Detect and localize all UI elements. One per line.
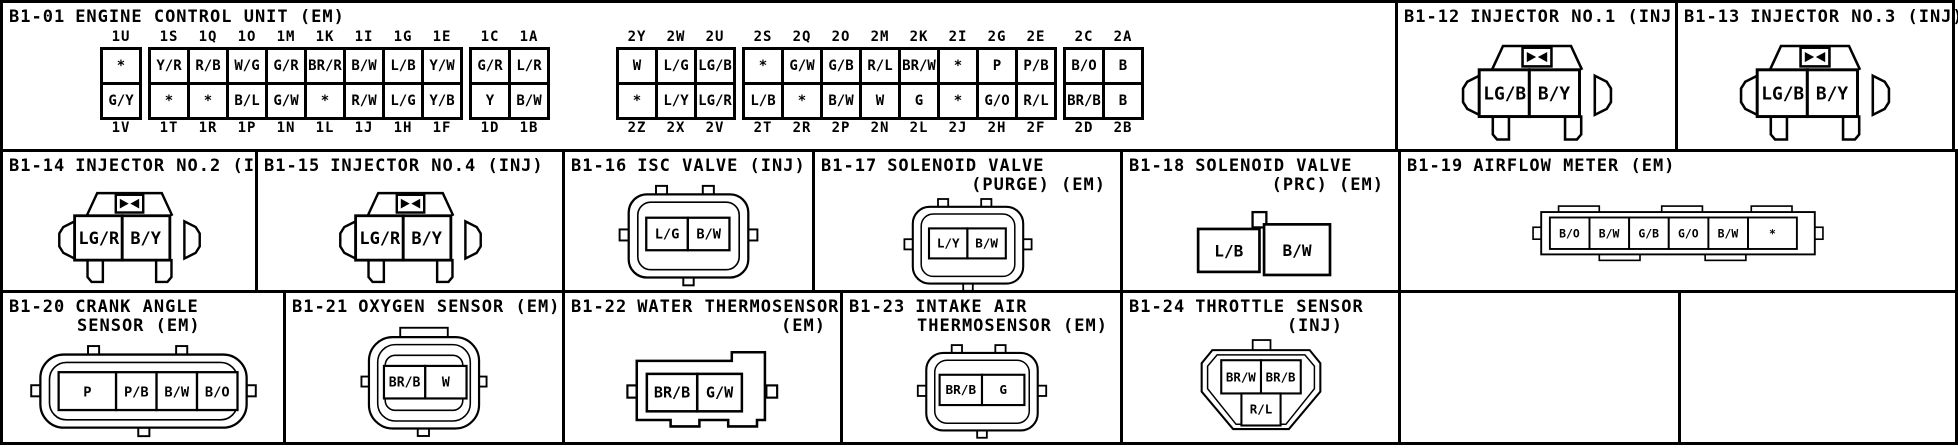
pin-number-bottom: 2J [937, 120, 979, 138]
wire-color-cell: L/B [742, 82, 784, 120]
connector-subtitle: THERMOSENSOR (EM) [843, 317, 1120, 335]
panel-title: B1-24THROTTLE SENSOR [1123, 293, 1398, 317]
block-connector-icon: L/B B/W [1146, 194, 1376, 290]
pin-wire-color: L/B [1214, 242, 1243, 261]
pin-wire-color: G/W [705, 383, 733, 401]
round-valve-connector-icon: L/Y B/W [878, 194, 1058, 290]
pin-column: 2U LG/B LG/R 2V [694, 29, 736, 138]
injector-connector-icon: LG/R B/Y [8, 177, 251, 290]
panel-b1-18-solenoid-valve-prc: B1-18SOLENOID VALVE (PRC) (EM) L/B B/W [1120, 149, 1401, 293]
connector-drawing: B/O B/W G/B G/O B/W * [1401, 176, 1955, 290]
pin-column: 2W L/G L/Y 2X [655, 29, 697, 138]
wire-color-cell: P/B [1015, 47, 1057, 85]
connector-name: INJECTOR NO.3 (INJ) [1750, 7, 1958, 27]
wire-color-cell: G/W [265, 82, 307, 120]
pin-number-bottom: 1L [304, 120, 346, 138]
pin-wire-color: B/Y [1816, 83, 1848, 104]
wire-color-cell: R/L [859, 47, 901, 85]
wire-color-cell: * [187, 82, 229, 120]
panel-b1-13-injector-3: B1-13INJECTOR NO.3 (INJ) LG/B B/Y [1675, 0, 1955, 152]
connector-name: WATER THERMOSENSOR [637, 297, 839, 317]
pin-wire-color: G/O [1678, 226, 1699, 240]
connector-id: B1-22 [571, 297, 627, 317]
panel-title: B1-12INJECTOR NO.1 (INJ) [1398, 3, 1675, 27]
pin-column: 2K BR/W G 2L [898, 29, 940, 138]
right-leg [1565, 116, 1581, 139]
connector-drawing: LG/R B/Y [258, 176, 562, 290]
pin-number-top: 1S [148, 29, 190, 47]
pin-wire-color: B/W [164, 384, 189, 400]
pin-number-top: 2S [742, 29, 784, 47]
pin-number-bottom: 1N [265, 120, 307, 138]
pin-number-top: 1U [100, 29, 142, 47]
connector-drawing: P P/B B/W B/O [3, 335, 283, 442]
pin-group: 2Y W * 2Z 2W L/G L/Y 2X [616, 29, 736, 138]
panel-b1-01-engine-control-unit: B1-01ENGINE CONTROL UNIT (EM) 1U * G/Y 1… [0, 0, 1398, 152]
pin-wire-color: B/Y [1537, 83, 1569, 104]
connector-drawing: BR/B W [286, 317, 562, 442]
wire-color-cell: B/O [1063, 47, 1105, 85]
connector-id: B1-23 [849, 297, 905, 317]
pin-number-bottom: 2D [1063, 120, 1105, 138]
pin-wire-color: B/W [696, 227, 721, 243]
left-leg [368, 260, 383, 282]
connector-id: B1-15 [264, 156, 320, 176]
pin-wire-color: P [83, 384, 91, 400]
panel-title: B1-21OXYGEN SENSOR (EM) [286, 293, 562, 317]
connector-id: B1-20 [9, 297, 65, 317]
ecu-pin-table-1: 1U * G/Y 1V 1S Y/R * [100, 29, 550, 138]
connector-pinout-board: B1-01ENGINE CONTROL UNIT (EM) 1U * G/Y 1… [0, 0, 1958, 448]
pin-wire-color: BR/B [1265, 369, 1295, 384]
bottom-tab [138, 428, 149, 436]
connector-id: B1-18 [1129, 156, 1185, 176]
wire-color-cell: R/B [187, 47, 229, 85]
pin-column: 2O G/B B/W 2P [820, 29, 862, 138]
wire-color-cell: G/R [469, 47, 511, 85]
pin-number-top: 1A [508, 29, 550, 47]
connector-id: B1-14 [9, 156, 65, 176]
ecu-pin-table-2: 2Y W * 2Z 2W L/G L/Y 2X [616, 29, 1144, 138]
wire-color-cell: G/Y [100, 82, 142, 120]
pin-number-top: 2O [820, 29, 862, 47]
panel-title: B1-15INJECTOR NO.4 (INJ) [258, 152, 562, 176]
pin-wire-color: G [999, 382, 1007, 397]
connector-subtitle: (PURGE) (EM) [815, 176, 1120, 194]
pin-column: 1U * G/Y 1V [100, 29, 142, 138]
panel-title: B1-19AIRFLOW METER (EM) [1401, 152, 1955, 176]
pin-number-top: 2I [937, 29, 979, 47]
panel-b1-19-airflow-meter: B1-19AIRFLOW METER (EM) [1398, 149, 1958, 293]
connector-name: ENGINE CONTROL UNIT (EM) [75, 7, 345, 27]
panel-title: B1-18SOLENOID VALVE [1123, 152, 1398, 176]
connector-drawing: L/B B/W [1123, 194, 1398, 290]
pin-number-bottom: 1T [148, 120, 190, 138]
pin-wire-color: LG/R [359, 227, 401, 247]
wire-color-cell: L/B [382, 47, 424, 85]
pin-number-bottom: 2N [859, 120, 901, 138]
connector-name: SOLENOID VALVE [887, 156, 1044, 176]
connector-id: B1-12 [1404, 7, 1460, 27]
pin-number-top: 1Q [187, 29, 229, 47]
connector-name: CRANK ANGLE [75, 297, 199, 317]
pin-wire-color: B/W [1718, 226, 1739, 240]
pin-number-bottom: 2F [1015, 120, 1057, 138]
wire-color-cell: LG/R [694, 82, 736, 120]
pin-column: 2Q G/W * 2R [781, 29, 823, 138]
connector-id: B1-13 [1684, 7, 1740, 27]
pin-column: 1M G/R G/W 1N [265, 29, 307, 138]
panel-b1-21-oxygen-sensor: B1-21OXYGEN SENSOR (EM) BR/B W [283, 290, 565, 445]
panel-title: B1-23INTAKE AIR [843, 293, 1120, 317]
pin-column: 1O W/G B/L 1P [226, 29, 268, 138]
wire-color-cell: * [100, 47, 142, 85]
side-tab [31, 385, 40, 396]
wire-color-cell: * [616, 82, 658, 120]
oxygen-sensor-connector-icon: BR/B W [330, 319, 518, 441]
pin-number-top: 1K [304, 29, 346, 47]
panel-title: B1-14INJECTOR NO.2 (INJ) [3, 152, 255, 176]
pin-number-bottom: 1D [469, 120, 511, 138]
connector-id: B1-21 [292, 297, 348, 317]
pin-number-bottom: 2B [1102, 120, 1144, 138]
pin-column: 1I B/W R/W 1J [343, 29, 385, 138]
panel-title: B1-20CRANK ANGLE [3, 293, 283, 317]
panel-b1-22-water-thermosensor: B1-22WATER THERMOSENSOR (EM) BR/B G/W [562, 290, 843, 445]
pin-wire-color: B/W [975, 235, 998, 250]
connector-name: INJECTOR NO.1 (INJ) [1470, 7, 1683, 27]
throttle-sensor-connector-icon: BR/W BR/B R/L [1172, 335, 1350, 442]
pin-number-top: 2M [859, 29, 901, 47]
panel-title: B1-01ENGINE CONTROL UNIT (EM) [3, 3, 1395, 27]
pin-wire-color: B/W [1282, 241, 1311, 260]
crank-sensor-connector-icon: P P/B B/W B/O [26, 335, 261, 442]
pin-wire-color: L/Y [936, 235, 959, 250]
side-tab [246, 385, 255, 396]
pin-number-top: 2W [655, 29, 697, 47]
pin-number-top: 2Y [616, 29, 658, 47]
pin-column: 2S * L/B 2T [742, 29, 784, 138]
pin-number-bottom: 1B [508, 120, 550, 138]
wire-color-cell: L/G [655, 47, 697, 85]
connector-subtitle: SENSOR (EM) [3, 317, 283, 335]
pin-column: 2A B B 2B [1102, 29, 1144, 138]
wire-color-cell: R/L [1015, 82, 1057, 120]
panel-title: B1-13INJECTOR NO.3 (INJ) [1678, 3, 1952, 27]
right-wing [184, 221, 199, 258]
pin-wire-color: BR/B [653, 383, 689, 401]
right-leg [1843, 116, 1859, 139]
wire-color-cell: B [1102, 82, 1144, 120]
pin-wire-color: B/Y [411, 227, 442, 247]
pin-wire-color: * [1769, 226, 1776, 240]
pin-column: 2G P G/O 2H [976, 29, 1018, 138]
wire-color-cell: BR/R [304, 47, 346, 85]
pin-wire-color: W [442, 375, 450, 390]
pin-number-top: 2G [976, 29, 1018, 47]
connector-drawing: L/Y B/W [815, 194, 1120, 290]
wire-color-cell: * [937, 47, 979, 85]
wire-color-cell: LG/B [694, 47, 736, 85]
pin-wire-color: LG/R [78, 227, 120, 247]
wire-color-cell: R/W [343, 82, 385, 120]
wire-color-cell: BR/W [898, 47, 940, 85]
pin-wire-color: B/O [1559, 226, 1580, 240]
pin-column: 1A L/R B/W 1B [508, 29, 550, 138]
wire-color-cell: Y/R [148, 47, 190, 85]
pin-number-top: 2U [694, 29, 736, 47]
left-leg [1771, 116, 1787, 139]
right-leg [437, 260, 452, 282]
pin-group: 2C B/O BR/B 2D 2A B B 2B [1063, 29, 1144, 138]
left-wing [59, 221, 74, 258]
pin-wire-color: BR/W [1225, 369, 1255, 384]
airflow-connector-icon: B/O B/W G/B G/O B/W * [1526, 186, 1830, 281]
pin-number-bottom: 2Z [616, 120, 658, 138]
pin-number-bottom: 1F [421, 120, 463, 138]
pin-column: 1G L/B L/G 1H [382, 29, 424, 138]
left-wing [1463, 75, 1479, 114]
wire-color-cell: L/G [382, 82, 424, 120]
pin-group: 2S * L/B 2T 2Q G/W * 2R [742, 29, 1057, 138]
connector-id: B1-01 [9, 7, 65, 27]
panel-b1-14-injector-2: B1-14INJECTOR NO.2 (INJ) LG/R B/Y [0, 149, 258, 293]
pin-number-bottom: 2T [742, 120, 784, 138]
wire-color-cell: BR/B [1063, 82, 1105, 120]
connector-name: INJECTOR NO.4 (INJ) [330, 156, 543, 176]
injector-connector-icon: LG/B B/Y [1687, 29, 1943, 148]
wire-color-cell: * [304, 82, 346, 120]
panel-title: B1-17SOLENOID VALVE [815, 152, 1120, 176]
wire-color-cell: P [976, 47, 1018, 85]
wire-color-cell: G/R [265, 47, 307, 85]
pin-wire-color: P/B [123, 384, 148, 400]
connector-name: AIRFLOW METER (EM) [1473, 156, 1675, 176]
pin-wire-color: L/G [655, 227, 680, 243]
pin-column: 2Y W * 2Z [616, 29, 658, 138]
connector-id: B1-19 [1407, 156, 1463, 176]
wire-color-cell: G/W [781, 47, 823, 85]
pin-wire-color: BR/B [945, 382, 976, 397]
panel-b1-17-solenoid-valve-purge: B1-17SOLENOID VALVE (PURGE) (EM) L/Y B/W [812, 149, 1123, 293]
connector-drawing: LG/B B/Y [1678, 27, 1952, 149]
pin-column: 2E P/B R/L 2F [1015, 29, 1057, 138]
panel-b1-24-throttle-sensor: B1-24THROTTLE SENSOR (INJ) BR/W BR/B R/L [1120, 290, 1401, 445]
pin-column: 1C G/R Y 1D [469, 29, 511, 138]
pin-wire-color: LG/B [1483, 83, 1526, 104]
pin-group: 1U * G/Y 1V [100, 29, 142, 138]
wire-color-cell: Y/W [421, 47, 463, 85]
panel-b1-15-injector-4: B1-15INJECTOR NO.4 (INJ) LG/R B/Y [255, 149, 565, 293]
pin-number-top: 2A [1102, 29, 1144, 47]
left-wing [340, 221, 355, 258]
pin-group: 1C G/R Y 1D 1A L/R B/W 1B [469, 29, 550, 138]
wire-color-cell: B/W [343, 47, 385, 85]
wire-color-cell: L/Y [655, 82, 697, 120]
connector-drawing: L/G B/W [565, 176, 812, 290]
round-valve-connector-icon: L/G B/W [591, 176, 786, 290]
panel-b1-16-isc-valve: B1-16ISC VALVE (INJ) L/G B/W [562, 149, 815, 293]
pin-group: 1S Y/R * 1T 1Q R/B * 1R [148, 29, 463, 138]
pin-wire-color: BR/B [389, 375, 421, 390]
connector-subtitle: (INJ) [1123, 317, 1398, 335]
connector-drawing: BR/W BR/B R/L [1123, 335, 1398, 442]
pin-number-top: 1I [343, 29, 385, 47]
connector-name: THROTTLE SENSOR [1195, 297, 1364, 317]
pin-number-top: 2K [898, 29, 940, 47]
connector-id: B1-16 [571, 156, 627, 176]
connector-id: B1-24 [1129, 297, 1185, 317]
pin-number-top: 1C [469, 29, 511, 47]
pin-number-bottom: 2P [820, 120, 862, 138]
pin-number-bottom: 2R [781, 120, 823, 138]
wire-color-cell: B/W [820, 82, 862, 120]
pin-wire-color: B/W [1599, 226, 1620, 240]
wire-color-cell: W [859, 82, 901, 120]
pin-number-bottom: 2X [655, 120, 697, 138]
row-1: B1-01ENGINE CONTROL UNIT (EM) 1U * G/Y 1… [0, 0, 1958, 152]
wire-color-cell: Y/B [421, 82, 463, 120]
pin-number-bottom: 1J [343, 120, 385, 138]
left-wing [1741, 75, 1757, 114]
injector-connector-icon: LG/B B/Y [1409, 29, 1665, 148]
wire-color-cell: B [1102, 47, 1144, 85]
left-leg [87, 260, 102, 282]
pin-number-top: 1O [226, 29, 268, 47]
ecu-pin-tables: 1U * G/Y 1V 1S Y/R * [100, 29, 1395, 138]
wire-color-cell: W [616, 47, 658, 85]
pin-number-bottom: 1P [226, 120, 268, 138]
pin-number-bottom: 1V [100, 120, 142, 138]
connector-drawing: LG/R B/Y [3, 176, 255, 290]
empty-panel [1678, 290, 1958, 445]
pin-number-bottom: 1H [382, 120, 424, 138]
wire-color-cell: B/L [226, 82, 268, 120]
connector-drawing: BR/B G/W [565, 335, 840, 442]
panel-title: B1-22WATER THERMOSENSOR [565, 293, 840, 317]
pin-column: 1K BR/R * 1L [304, 29, 346, 138]
connector-name: OXYGEN SENSOR (EM) [358, 297, 560, 317]
left-leg [1492, 116, 1508, 139]
pin-wire-color: R/L [1249, 401, 1271, 416]
wire-color-cell: G/B [820, 47, 862, 85]
pin-column: 2M R/L W 2N [859, 29, 901, 138]
right-wing [1594, 75, 1610, 114]
connector-drawing: LG/B B/Y [1398, 27, 1675, 149]
pin-column: 2I * * 2J [937, 29, 979, 138]
pin-column: 2C B/O BR/B 2D [1063, 29, 1105, 138]
pin-number-top: 1M [265, 29, 307, 47]
connector-id: B1-17 [821, 156, 877, 176]
wire-color-cell: Y [469, 82, 511, 120]
row-2: B1-14INJECTOR NO.2 (INJ) LG/R B/Y [0, 149, 1958, 293]
pin-column: 1E Y/W Y/B 1F [421, 29, 463, 138]
pin-wire-color: B/O [204, 384, 229, 400]
round-valve-connector-icon: BR/B G [891, 336, 1073, 442]
panel-b1-23-intake-air-thermosensor: B1-23INTAKE AIR THERMOSENSOR (EM) BR/B G [840, 290, 1123, 445]
wire-color-cell: B/W [508, 82, 550, 120]
wire-color-cell: G [898, 82, 940, 120]
wire-color-cell: * [937, 82, 979, 120]
connector-subtitle: (PRC) (EM) [1123, 176, 1398, 194]
connector-drawing: BR/B G [843, 335, 1120, 442]
pin-number-bottom: 2L [898, 120, 940, 138]
injector-connector-icon: LG/R B/Y [289, 177, 532, 290]
panel-title: B1-16ISC VALVE (INJ) [565, 152, 812, 176]
right-wing [465, 221, 480, 258]
connector-name: SOLENOID VALVE [1195, 156, 1352, 176]
row-3: B1-20CRANK ANGLE SENSOR (EM) P [0, 290, 1958, 445]
pin-wire-color: B/Y [130, 227, 161, 247]
wire-color-cell: W/G [226, 47, 268, 85]
wire-color-cell: * [148, 82, 190, 120]
wire-color-cell: L/R [508, 47, 550, 85]
right-leg [156, 260, 171, 282]
connector-subtitle: (EM) [565, 317, 840, 335]
pin-wire-color: LG/B [1761, 83, 1804, 104]
pin-wire-color: G/B [1638, 226, 1659, 240]
panel-b1-20-crank-angle-sensor: B1-20CRANK ANGLE SENSOR (EM) P [0, 290, 286, 445]
pin-number-top: 2E [1015, 29, 1057, 47]
pin-number-top: 2Q [781, 29, 823, 47]
connector-name: ISC VALVE (INJ) [637, 156, 806, 176]
pin-number-bottom: 1R [187, 120, 229, 138]
pin-column: 1Q R/B * 1R [187, 29, 229, 138]
pin-number-bottom: 2V [694, 120, 736, 138]
pin-column: 1S Y/R * 1T [148, 29, 190, 138]
water-thermosensor-connector-icon: BR/B G/W [595, 335, 811, 442]
wire-color-cell: * [742, 47, 784, 85]
pin-number-top: 2C [1063, 29, 1105, 47]
right-wing [1873, 75, 1889, 114]
wire-color-cell: * [781, 82, 823, 120]
empty-panel [1398, 290, 1681, 445]
wire-color-cell: G/O [976, 82, 1018, 120]
side-tab [766, 385, 777, 397]
connector-name: INTAKE AIR [915, 297, 1027, 317]
pin-number-top: 1E [421, 29, 463, 47]
pin-number-bottom: 2H [976, 120, 1018, 138]
pin-number-top: 1G [382, 29, 424, 47]
panel-b1-12-injector-1: B1-12INJECTOR NO.1 (INJ) LG/B B/Y [1395, 0, 1678, 152]
